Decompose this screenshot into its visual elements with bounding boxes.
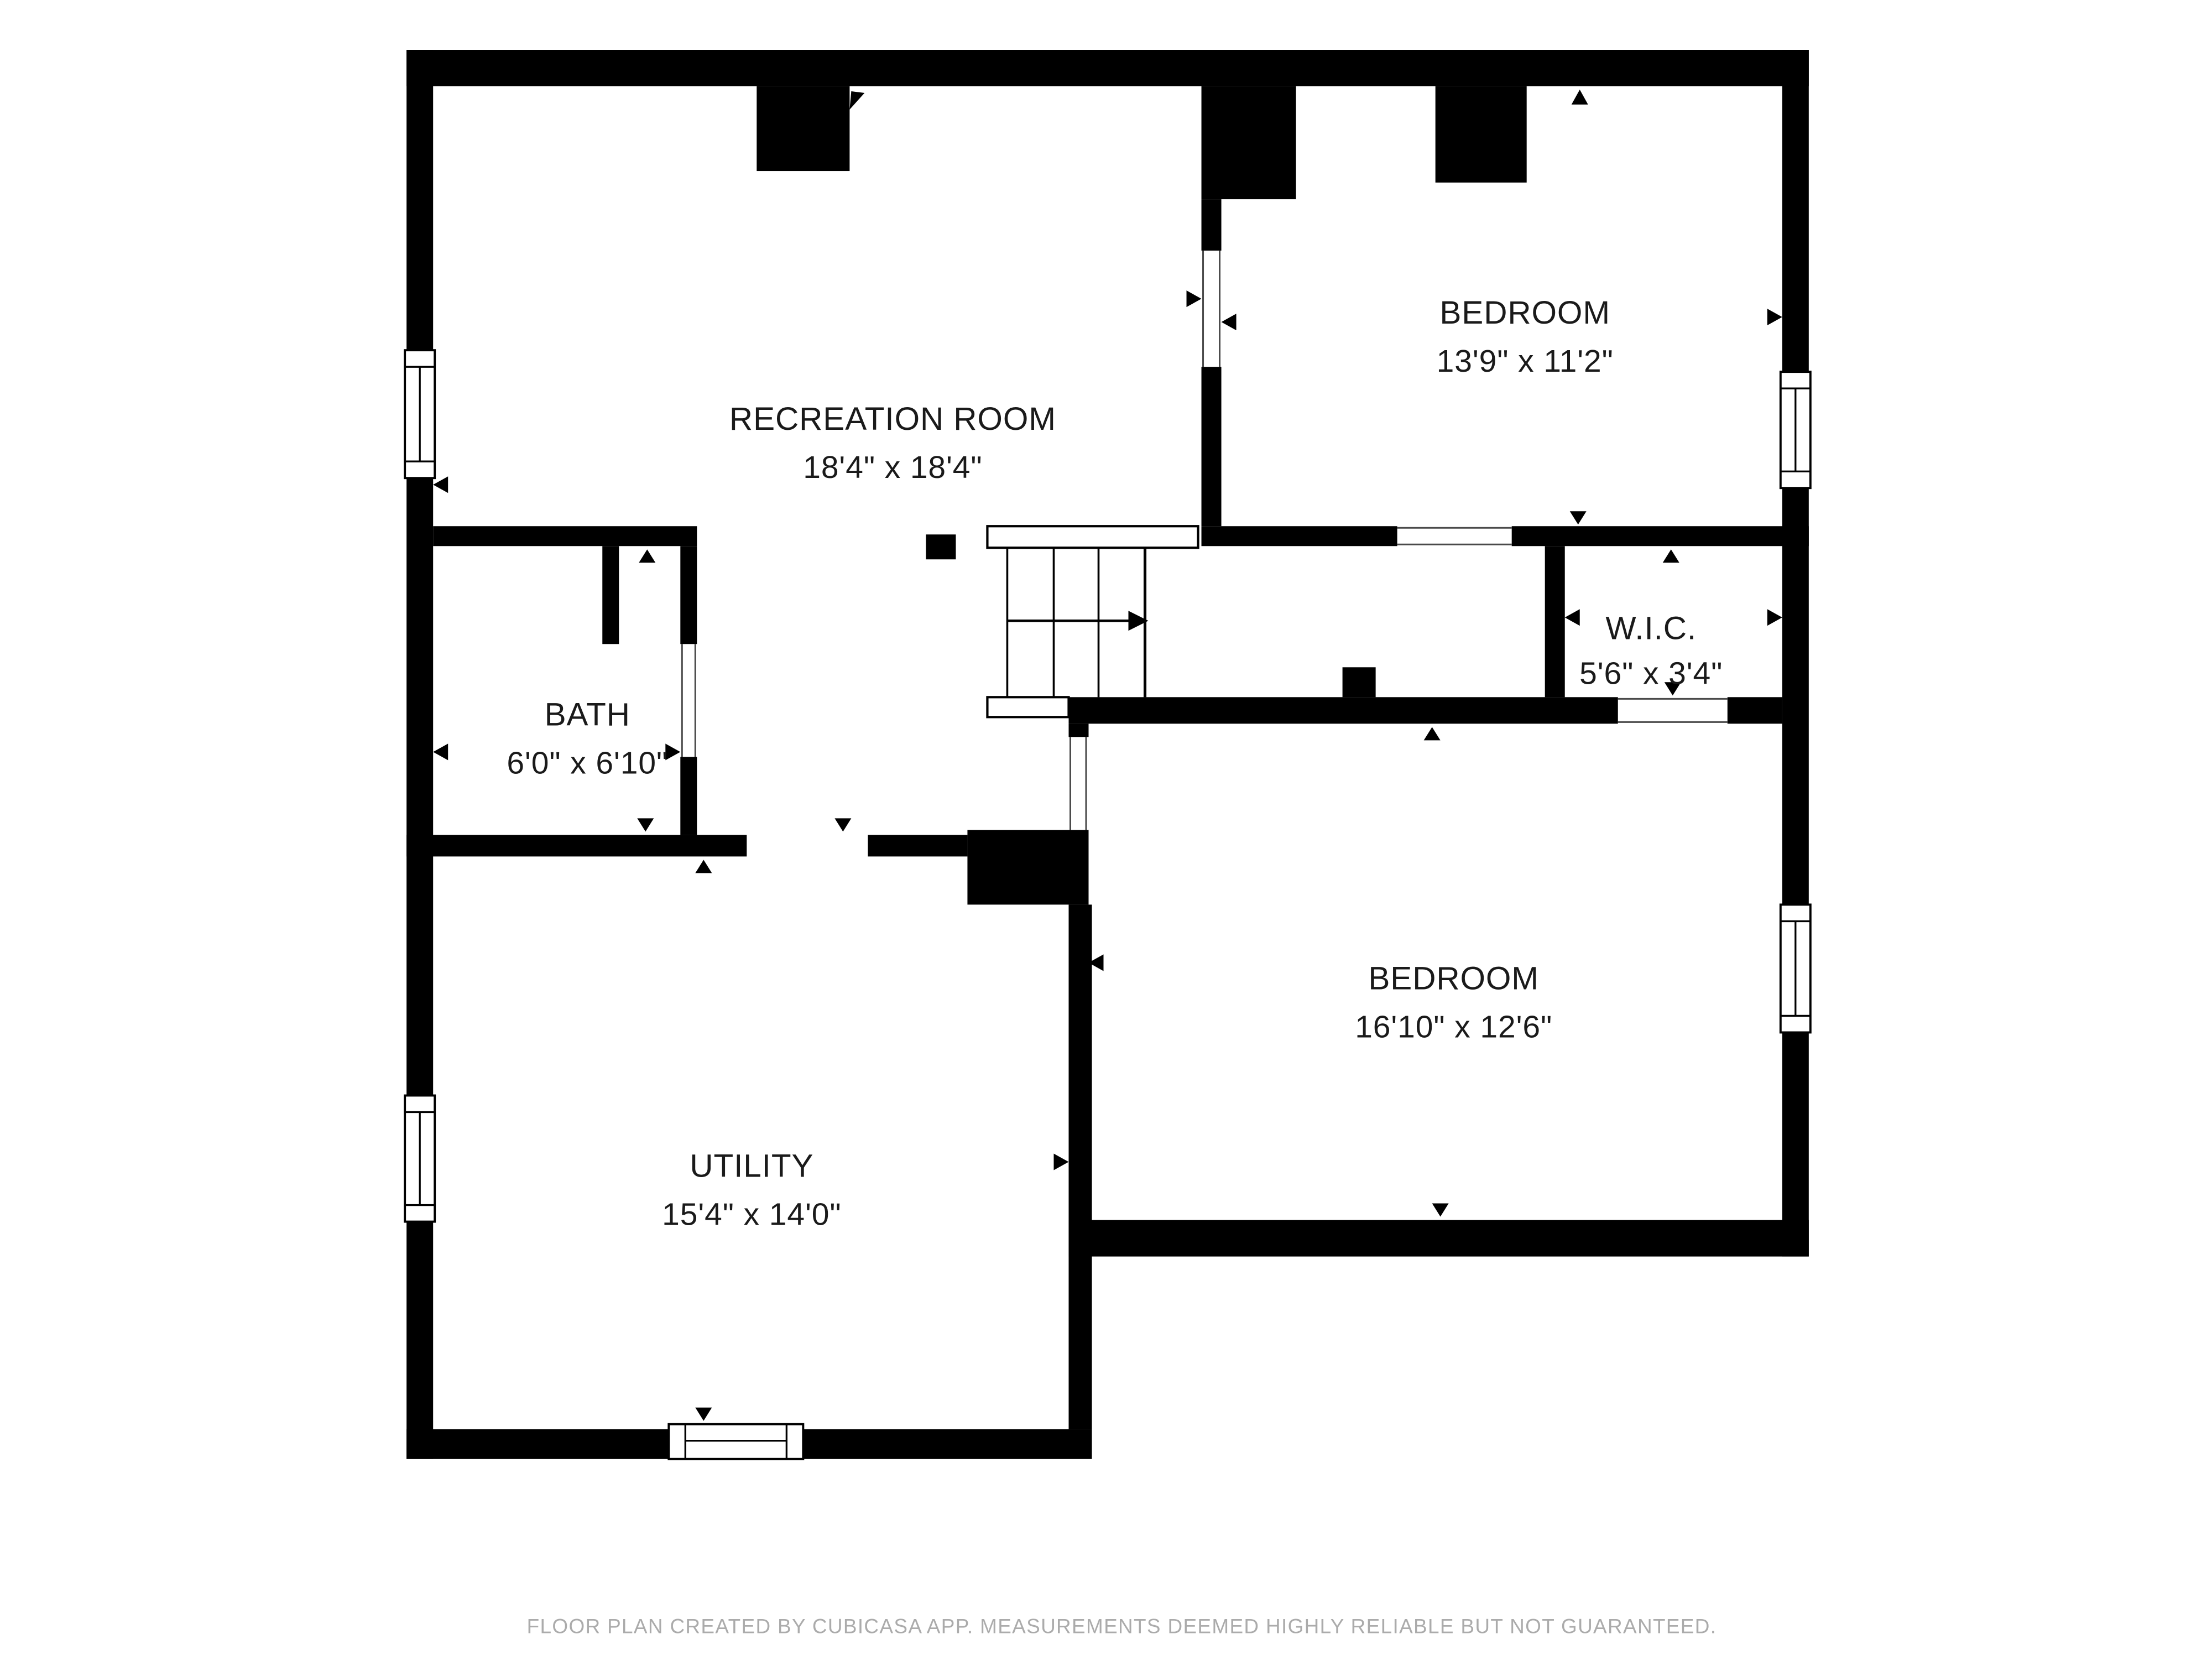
- room-label-bath: BATH 6'0" x 6'10": [507, 696, 668, 780]
- marker-right-icon: [1053, 1154, 1068, 1170]
- wall-divider-lower: [1202, 367, 1222, 526]
- marker-left-icon: [1565, 609, 1580, 626]
- wall-utility-right: [1068, 904, 1092, 1429]
- window-bedroom-top-right: [1781, 372, 1811, 488]
- interior-walls: [406, 86, 1809, 904]
- door-bath: [682, 644, 695, 757]
- room-label-utility: UTILITY 15'4" x 14'0": [662, 1148, 841, 1232]
- room-name: W.I.C.: [1605, 610, 1697, 646]
- window-utility-left: [405, 1095, 435, 1221]
- marker-up-icon: [1424, 727, 1441, 740]
- chimney-block-bedroom: [1436, 86, 1527, 183]
- room-label-bedroom-top: BEDROOM 13'9" x 11'2": [1437, 295, 1614, 379]
- staircase: [987, 526, 1198, 717]
- wall-exterior-right-middle: [1782, 488, 1809, 904]
- chimney-block-recreation: [757, 86, 849, 171]
- marker-right-icon: [1767, 309, 1782, 325]
- wall-bath-top: [433, 526, 697, 546]
- wall-stair-door-stub: [1068, 724, 1088, 737]
- wall-exterior-left-lower: [406, 1222, 433, 1459]
- room-label-wic: W.I.C. 5'6" x 3'4": [1579, 610, 1723, 691]
- marker-down-icon: [695, 1408, 712, 1421]
- room-name: BEDROOM: [1439, 295, 1610, 331]
- room-name: UTILITY: [690, 1148, 813, 1184]
- wall-wic-left: [1545, 546, 1565, 697]
- room-dimensions: 18'4" x 18'4": [803, 450, 982, 485]
- door-bedroom-hallway: [1397, 528, 1512, 544]
- marker-down-icon: [1432, 1204, 1449, 1217]
- room-dimensions: 16'10" x 12'6": [1355, 1009, 1552, 1044]
- floor-plan-canvas: RECREATION ROOM 18'4" x 18'4" BEDROOM 13…: [0, 0, 2212, 1660]
- stair-direction-arrow: [1007, 611, 1148, 631]
- room-label-recreation-room: RECREATION ROOM 18'4" x 18'4": [729, 401, 1056, 485]
- wall-bath-stub: [602, 546, 619, 644]
- room-name: RECREATION ROOM: [729, 401, 1056, 437]
- marker-down-icon: [834, 818, 851, 831]
- floor-plan-page: RECREATION ROOM 18'4" x 18'4" BEDROOM 13…: [0, 0, 2212, 1660]
- marker-down-icon: [1570, 511, 1587, 524]
- wall-hallway-top-left: [1202, 526, 1397, 546]
- door-stairs-utility: [1070, 737, 1086, 830]
- wall-exterior-top: [406, 50, 1809, 86]
- marker-right-icon: [1187, 290, 1202, 307]
- wall-hallway-bottom: [1068, 697, 1618, 724]
- stair-landing-bottom: [987, 697, 1068, 717]
- room-dimensions: 5'6" x 3'4": [1579, 655, 1723, 691]
- wall-bath-right-upper: [680, 546, 697, 644]
- window-recreation-left: [405, 350, 435, 478]
- wall-exterior-right-upper: [1782, 50, 1809, 372]
- windows: [405, 350, 1811, 1459]
- wall-exterior-left-middle: [406, 478, 433, 1095]
- window-bedroom-bottom-right: [1781, 904, 1811, 1032]
- footer-disclaimer: FLOOR PLAN CREATED BY CUBICASA APP. MEAS…: [527, 1615, 1717, 1638]
- room-name: BEDROOM: [1368, 960, 1539, 996]
- marker-up-icon: [695, 860, 712, 873]
- wall-utility-top-left: [406, 835, 747, 856]
- marker-right-icon: [1767, 609, 1782, 626]
- marker-up-icon: [1663, 549, 1679, 563]
- door-wic: [1618, 699, 1728, 722]
- wall-exterior-bottom-bedroom: [1068, 1220, 1808, 1257]
- window-utility-bottom: [669, 1424, 803, 1459]
- room-dimensions: 15'4" x 14'0": [662, 1197, 841, 1232]
- wall-wic-bottom-right: [1728, 697, 1782, 724]
- wall-hallway-top-right: [1512, 526, 1809, 546]
- marker-left-icon: [433, 743, 448, 760]
- wall-exterior-left-upper: [406, 50, 433, 350]
- marker-down-icon: [637, 818, 654, 831]
- wall-post-recreation: [926, 534, 956, 559]
- room-dimensions: 13'9" x 11'2": [1437, 344, 1614, 379]
- marker-up-icon: [1572, 90, 1588, 105]
- wall-utility-top-right: [868, 835, 967, 856]
- marker-left-icon: [1222, 314, 1237, 330]
- room-label-bedroom-bottom: BEDROOM 16'10" x 12'6": [1355, 960, 1552, 1044]
- door-recreation-bedroom: [1203, 251, 1220, 367]
- stair-treads: [1007, 548, 1145, 697]
- wall-post-hallway: [1343, 667, 1376, 697]
- wall-divider-upper: [1202, 199, 1222, 251]
- marker-up-icon: [639, 549, 655, 563]
- chimney-block-divider: [1202, 86, 1296, 199]
- room-dimensions: 6'0" x 6'10": [507, 745, 668, 780]
- chimney-block-utility: [967, 830, 1088, 904]
- stair-landing-top: [987, 526, 1198, 548]
- wall-bath-right-lower: [680, 757, 697, 835]
- marker-swing-icon: [849, 91, 864, 110]
- room-name: BATH: [545, 696, 630, 732]
